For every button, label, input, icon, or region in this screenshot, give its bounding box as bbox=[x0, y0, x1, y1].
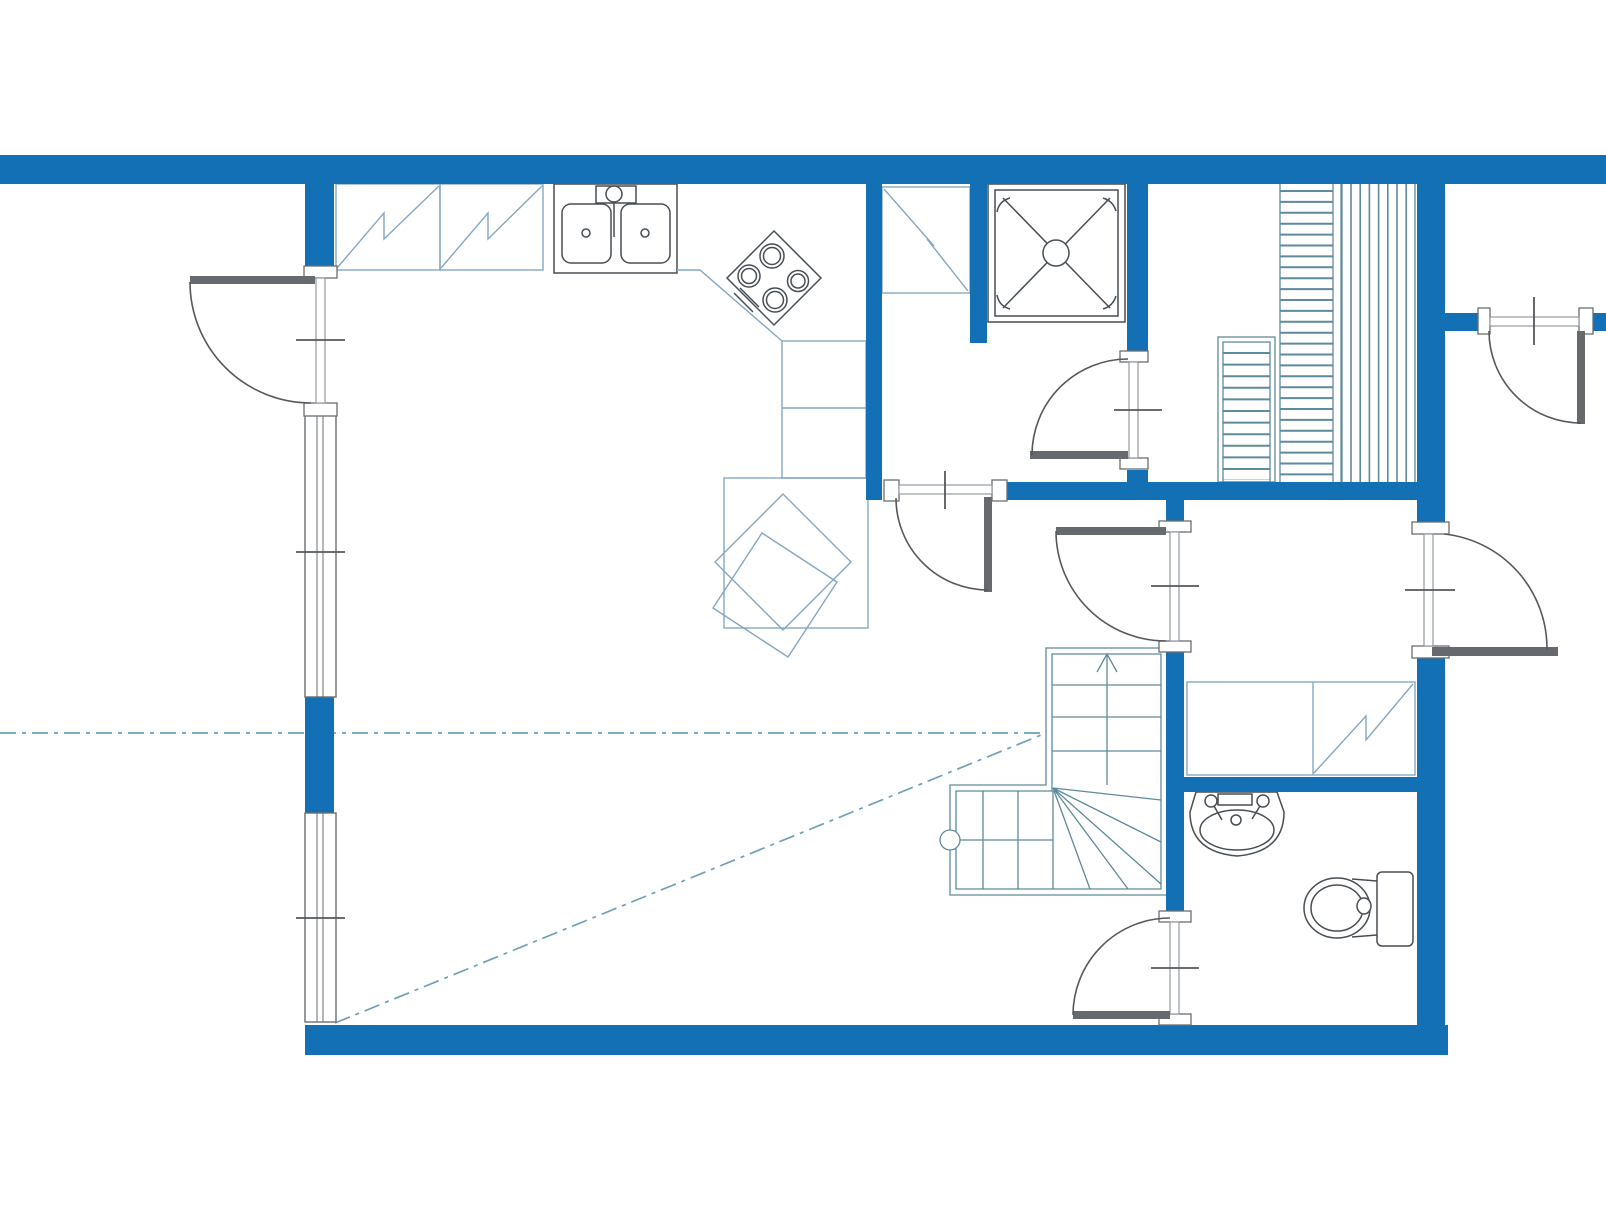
stairwell-flights bbox=[1218, 184, 1415, 482]
wall-mid-horizontal bbox=[1003, 482, 1417, 500]
door-bathroom bbox=[1073, 911, 1199, 1025]
wall-exterior-north bbox=[0, 155, 1606, 184]
counter-reservation-1 bbox=[336, 184, 440, 270]
wall-east-lower bbox=[1417, 658, 1445, 1025]
toilet bbox=[1304, 872, 1413, 946]
door-entrance-west bbox=[190, 266, 345, 416]
wall-vestibule-west-upper bbox=[1166, 500, 1184, 523]
wall-bathroom-north bbox=[1184, 777, 1417, 792]
wall-exterior-south bbox=[305, 1025, 1448, 1055]
door-vestibule-west bbox=[1056, 521, 1199, 652]
toilet-flush bbox=[1357, 898, 1371, 914]
dining-table-group bbox=[713, 478, 868, 657]
door-vestibule-east bbox=[1405, 522, 1558, 658]
wall-washroom-east-upper bbox=[1127, 184, 1148, 352]
tap-right bbox=[1257, 795, 1269, 807]
tap-left bbox=[1205, 795, 1217, 807]
closet-zigzag bbox=[1314, 684, 1413, 773]
washroom-fixtures bbox=[882, 184, 1125, 322]
newel-post bbox=[940, 830, 960, 850]
winder-fan bbox=[1053, 788, 1161, 889]
floor-plan-page bbox=[0, 0, 1606, 1205]
flight-lower-outline bbox=[1218, 337, 1275, 482]
table-outline bbox=[724, 478, 868, 628]
wall-west-mid bbox=[305, 697, 334, 813]
kitchen-fixtures bbox=[336, 184, 868, 657]
wall-ne-branch-right bbox=[1593, 313, 1606, 331]
counter-reservation-2-zigzag bbox=[441, 186, 542, 268]
wall-east-upper bbox=[1417, 184, 1445, 522]
counter-east bbox=[782, 341, 866, 478]
door-northeast-room bbox=[1478, 297, 1593, 424]
ceiling-height-lines bbox=[0, 733, 1046, 1023]
door-kitchen-washroom bbox=[884, 471, 1007, 592]
wall-kitchen-east bbox=[866, 184, 882, 500]
toilet-tank bbox=[1377, 872, 1413, 946]
shower bbox=[988, 184, 1125, 322]
window-1 bbox=[296, 407, 345, 697]
counter-reservation-1-zigzag bbox=[337, 186, 439, 268]
wall-vestibule-west-lower bbox=[1166, 652, 1184, 913]
shower-drain bbox=[1043, 240, 1069, 266]
door-washroom-landing bbox=[1030, 351, 1162, 469]
cooktop bbox=[727, 231, 821, 325]
counter-reservation-2 bbox=[440, 184, 543, 270]
washbasin bbox=[1190, 792, 1284, 856]
kitchen-double-sink bbox=[554, 184, 677, 273]
l-shaped-stair bbox=[940, 648, 1167, 895]
table-diamond bbox=[715, 494, 851, 630]
wall-ne-branch-left bbox=[1445, 313, 1479, 331]
bathroom-fixtures bbox=[1190, 792, 1413, 946]
vestibule-closets bbox=[1187, 682, 1415, 775]
floor-plan-canvas bbox=[0, 0, 1606, 1205]
faucet-head bbox=[606, 186, 622, 202]
closet-reservation bbox=[1187, 682, 1415, 775]
wall-west-upper bbox=[305, 184, 334, 268]
tall-cabinet-zigzag bbox=[884, 189, 968, 291]
height-line-diagonal bbox=[335, 733, 1046, 1023]
window-2 bbox=[296, 813, 345, 1022]
wall-washroom-stub bbox=[970, 184, 987, 343]
